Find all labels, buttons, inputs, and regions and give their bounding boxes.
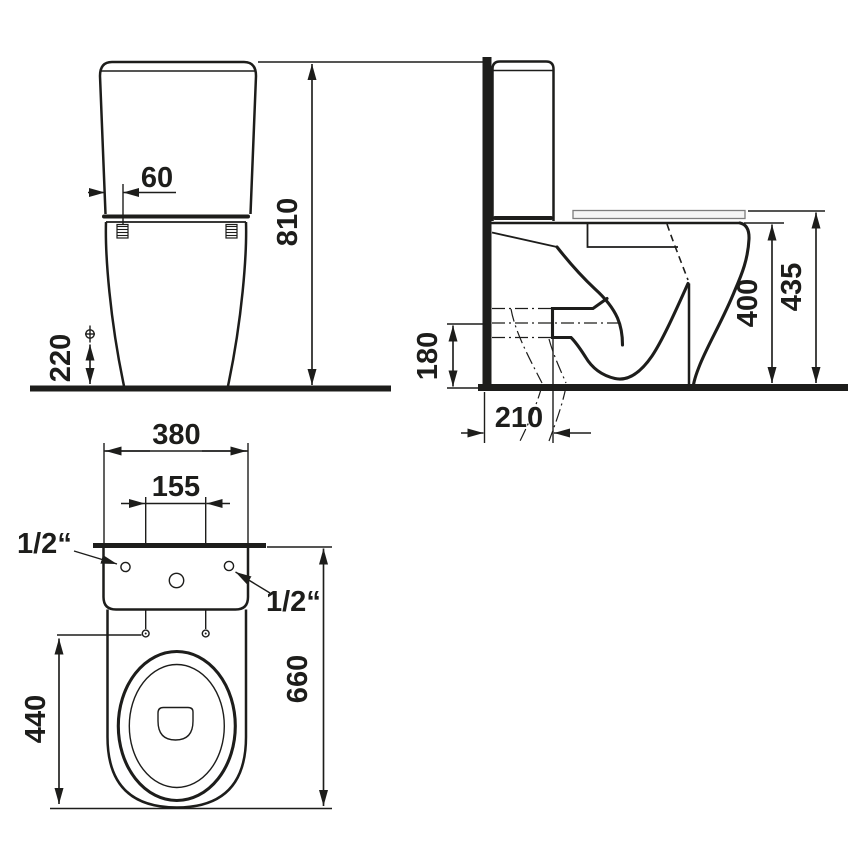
seat-fixing-hole-right: [202, 630, 209, 637]
dimension-220: 220: [45, 326, 95, 385]
toilet-dimension-drawing: 60 810 220: [0, 0, 868, 868]
dim-label-660: 660: [282, 655, 314, 703]
inlet-hole-right: [224, 561, 233, 570]
dim-label-60: 60: [141, 162, 173, 194]
dim-label-440: 440: [20, 695, 52, 743]
dim-label-210: 210: [495, 402, 543, 434]
pedestal-right-edge: [228, 222, 246, 386]
dimension-180: 180: [412, 324, 486, 388]
dimension-810: 810: [258, 62, 483, 385]
pedestal-left-edge: [106, 222, 124, 386]
inlet-label-right: 1/2“: [266, 586, 321, 618]
hidden-outlet-pipe-3: [549, 339, 566, 383]
sump-outline: [158, 708, 193, 741]
dim-label-155: 155: [152, 471, 200, 503]
cistern-side-outline: [493, 62, 554, 222]
technical-drawing-sheet: 60 810 220: [0, 0, 868, 868]
fixing-bolt-left: [117, 225, 128, 239]
inlet-label-left: 1/2“: [17, 528, 72, 560]
top-view: 380 155 1/2“: [17, 419, 332, 809]
side-view: 180 210 400 435: [412, 57, 848, 443]
dim-label-180: 180: [412, 332, 444, 380]
dim-label-220: 220: [45, 334, 77, 382]
rim-band-edge: [588, 223, 679, 247]
dim-label-810: 810: [272, 198, 304, 246]
seat-lid: [573, 211, 745, 219]
rim-underside: [492, 233, 557, 248]
inlet-hole-left: [121, 562, 130, 571]
hidden-outlet-pipe-1: [511, 309, 542, 383]
dim-label-435: 435: [776, 263, 808, 311]
dim-label-380: 380: [152, 419, 200, 451]
seat-fixing-hole-left: [142, 630, 149, 637]
dim-label-400: 400: [732, 279, 764, 327]
bowl-inner-curve: [557, 247, 623, 345]
hidden-bowl-curve: [667, 224, 688, 280]
flush-valve-hole: [169, 573, 183, 587]
fixing-bolt-right: [226, 225, 237, 239]
